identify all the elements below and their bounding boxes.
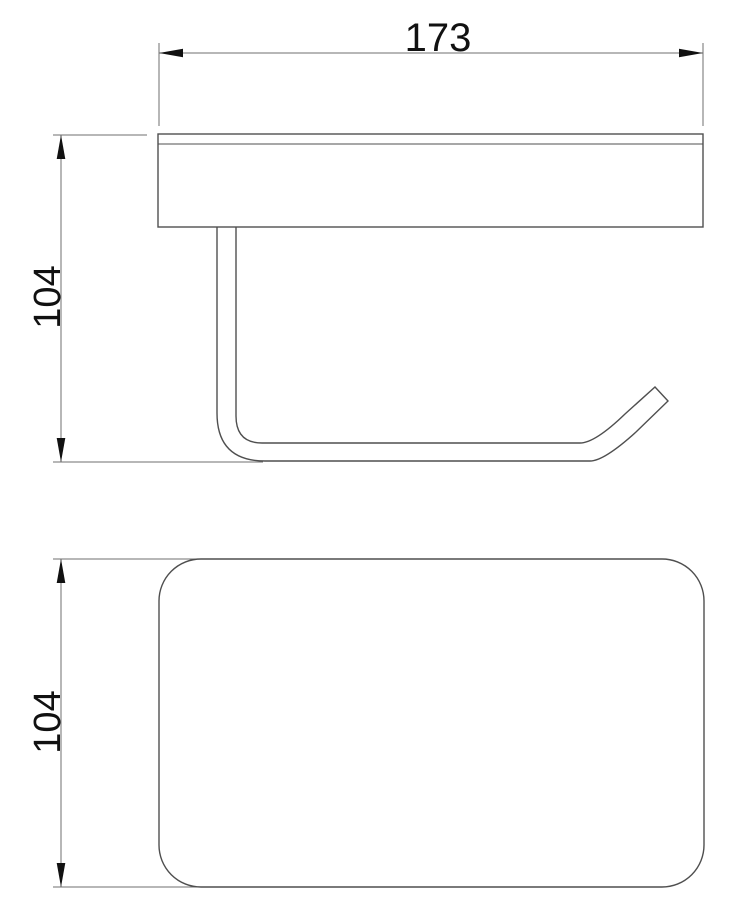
front-view: 173 104 [27,16,703,462]
depth-dimension: 104 [27,559,210,887]
arrowhead-down-icon [57,438,66,462]
top-view: 104 [27,559,704,887]
arrowhead-up-icon [57,135,66,159]
shelf-outline [158,134,703,227]
depth-dimension-value: 104 [27,690,69,753]
dimension-drawing: 173 104 [0,0,744,907]
arrowhead-down-icon [57,863,66,887]
arrowhead-up-icon [57,559,66,583]
roll-hook-outline [217,227,668,461]
shelf-profile [158,134,703,227]
width-dimension: 173 [159,16,703,126]
width-dimension-value: 173 [405,16,472,60]
height-dimension: 104 [27,135,263,462]
shelf-plan-outline [159,559,704,887]
arrowhead-right-icon [679,49,703,58]
height-dimension-value: 104 [27,265,69,328]
arrowhead-left-icon [159,49,183,58]
technical-drawing-page: 173 104 [0,0,744,907]
